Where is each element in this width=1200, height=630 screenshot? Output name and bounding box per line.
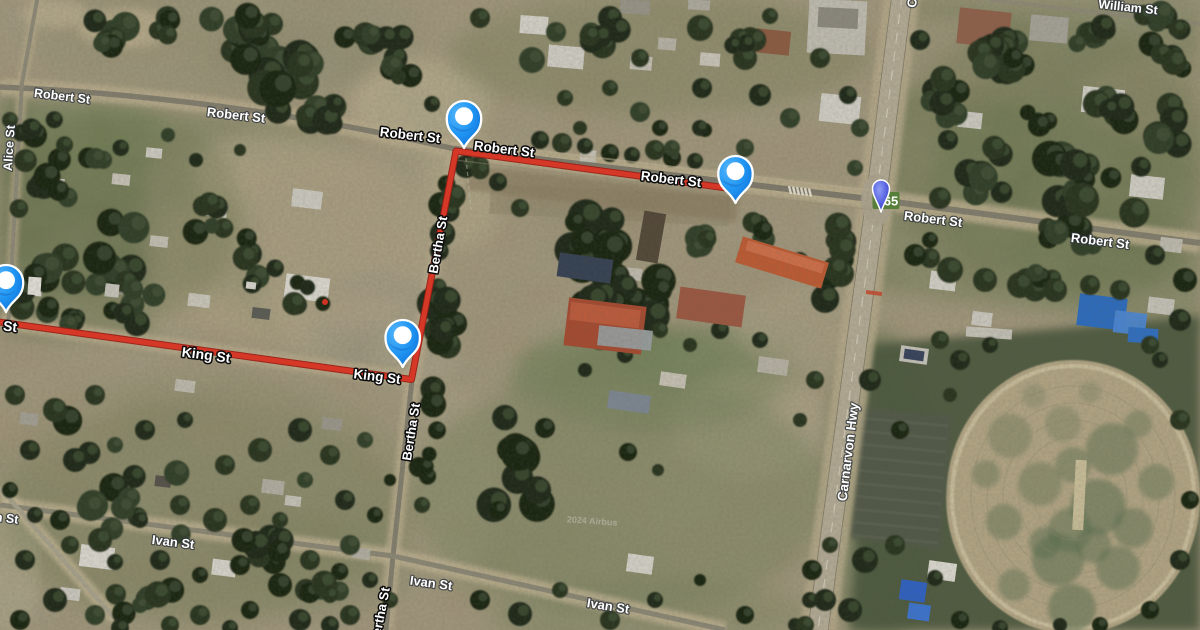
svg-text:St: St <box>2 317 18 335</box>
svg-text:C: C <box>904 0 920 8</box>
